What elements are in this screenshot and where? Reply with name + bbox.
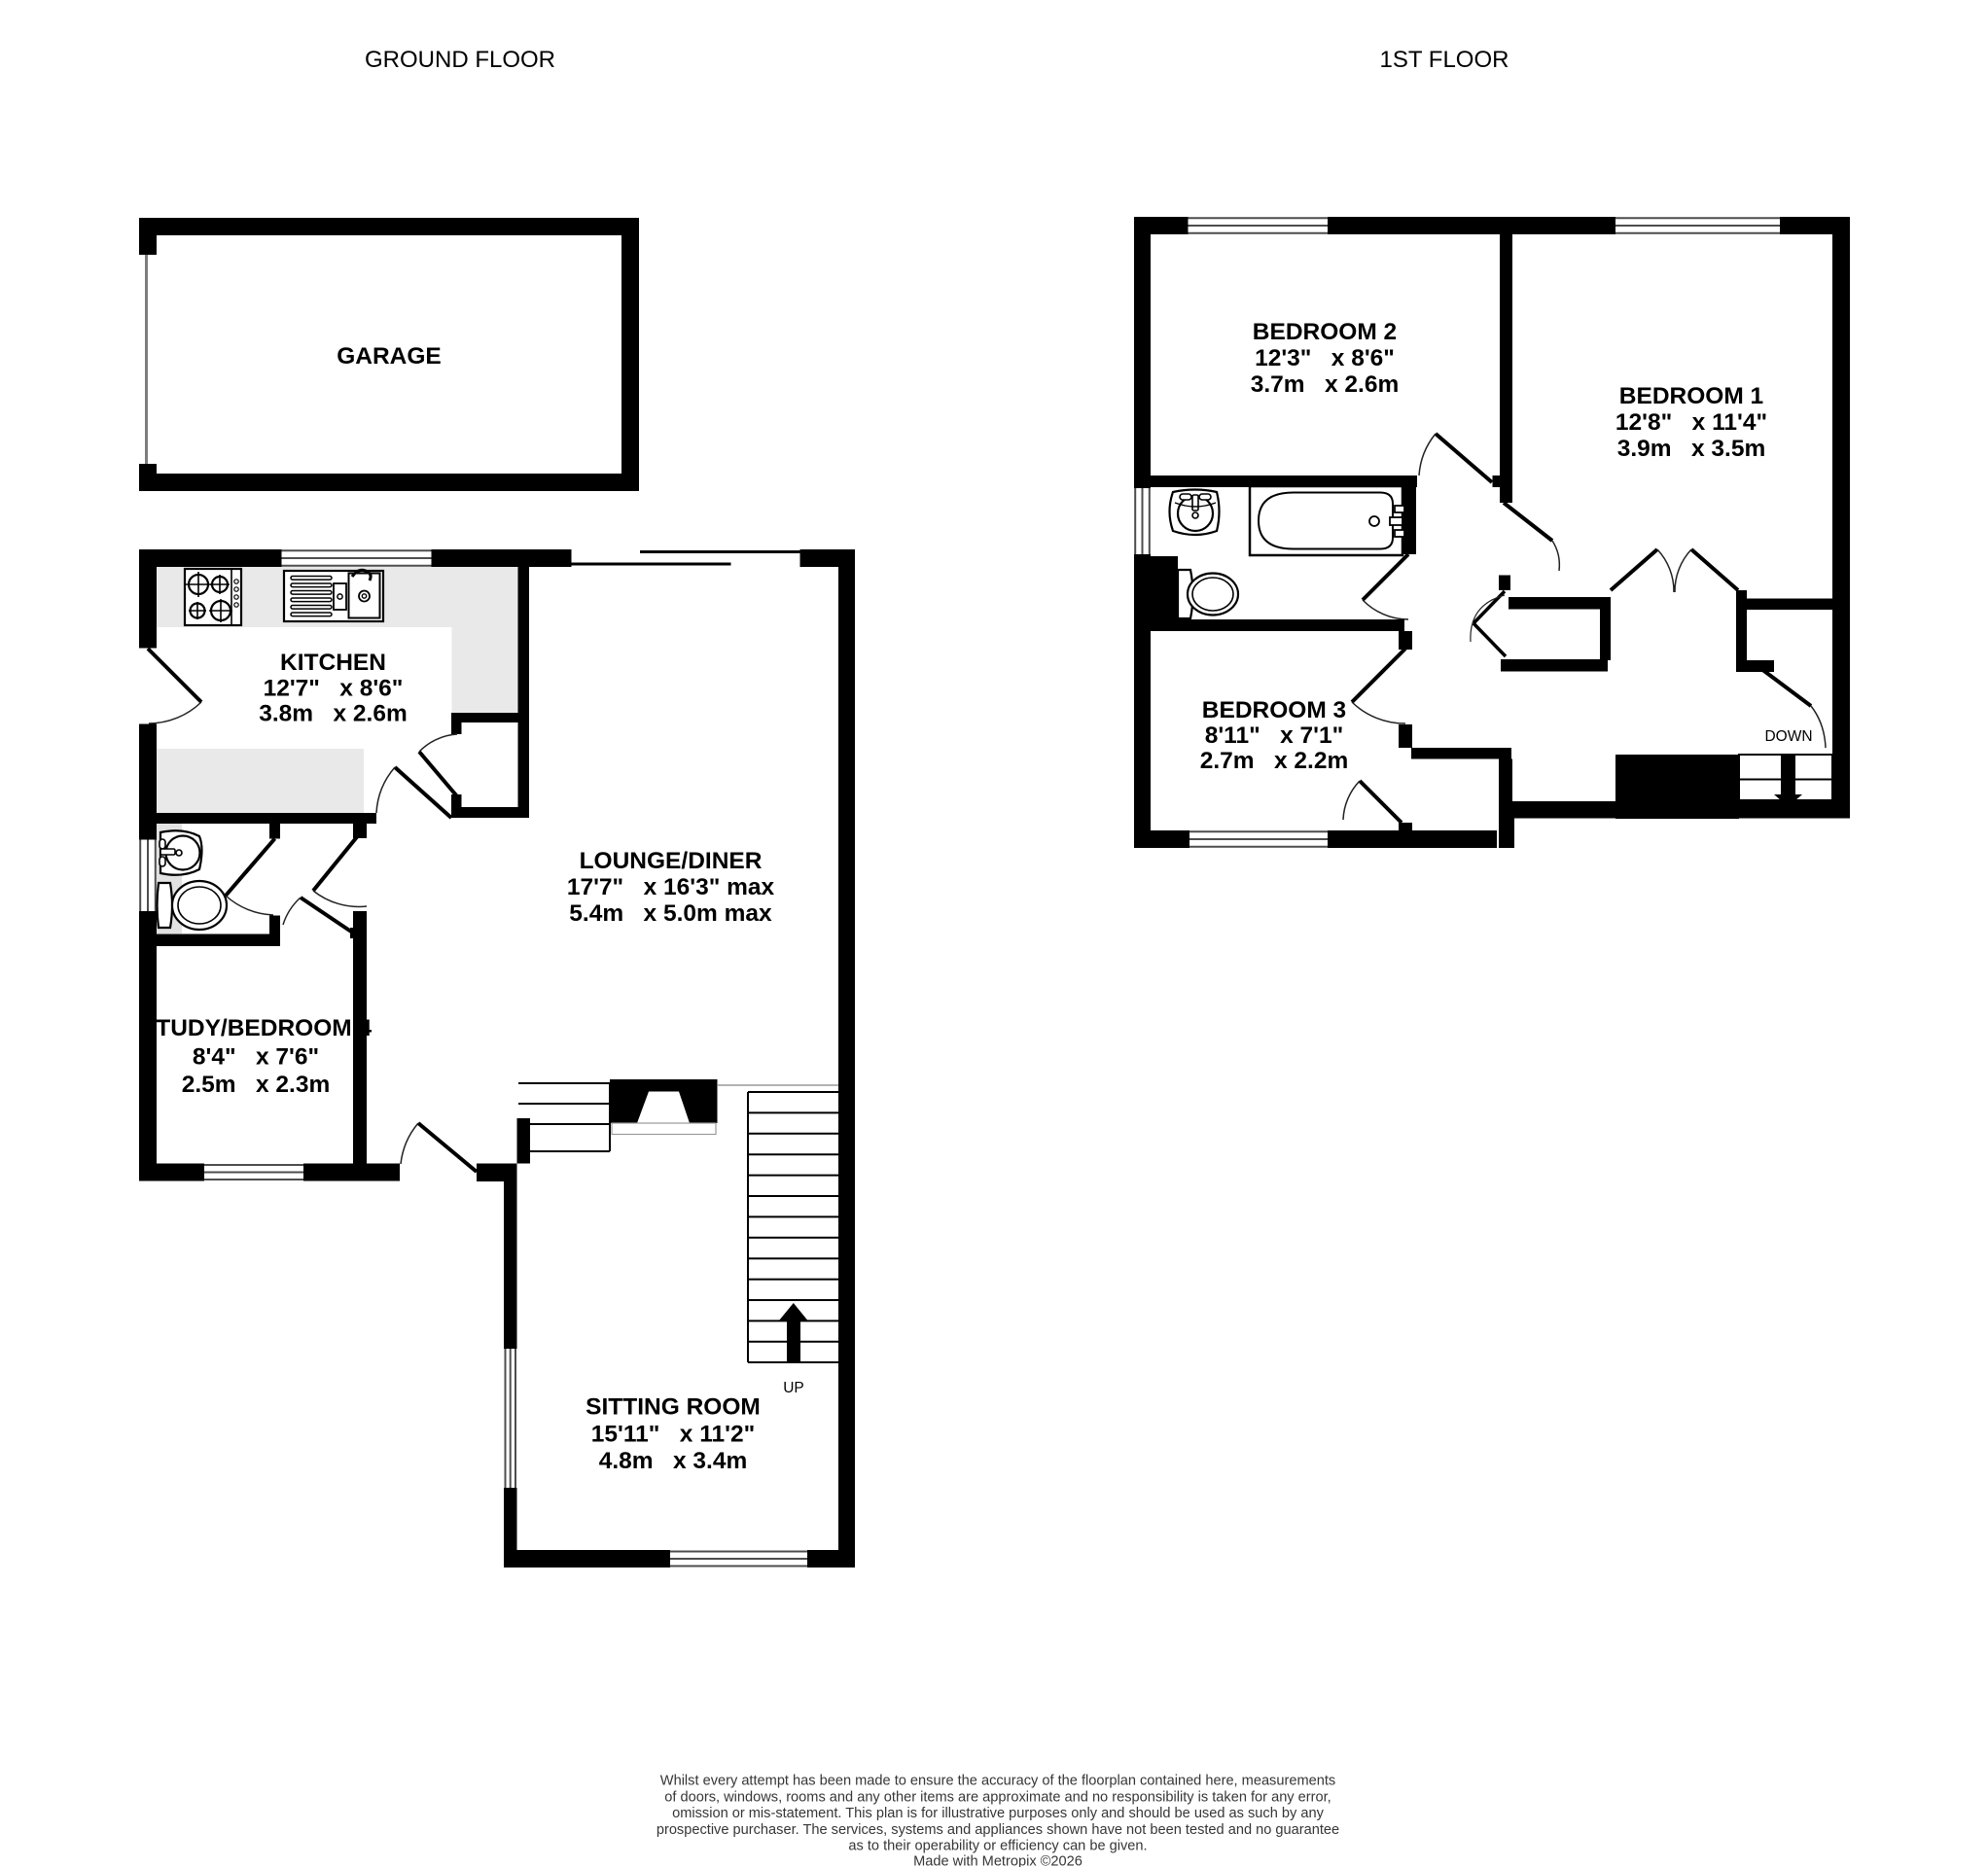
svg-text:5.4m x 5.0m max: 5.4m x 5.0m max: [569, 900, 772, 927]
svg-text:2.5m x 2.3m: 2.5m x 2.3m: [182, 1072, 331, 1098]
svg-text:Whilst every attempt has been: Whilst every attempt has been made to en…: [660, 1774, 1335, 1789]
svg-text:BEDROOM 2: BEDROOM 2: [1253, 319, 1397, 345]
svg-text:1ST FLOOR: 1ST FLOOR: [1380, 47, 1509, 73]
svg-text:4.8m x 3.4m: 4.8m x 3.4m: [599, 1448, 748, 1474]
svg-text:12'8" x 11'4": 12'8" x 11'4": [1615, 409, 1767, 436]
svg-text:8'11" x 7'1": 8'11" x 7'1": [1205, 722, 1344, 749]
svg-text:3.7m x 2.6m: 3.7m x 2.6m: [1251, 371, 1400, 398]
svg-text:3.9m x 3.5m: 3.9m x 3.5m: [1617, 436, 1766, 462]
svg-text:17'7" x 16'3" max: 17'7" x 16'3" max: [567, 874, 775, 900]
svg-text:KITCHEN: KITCHEN: [280, 650, 386, 676]
svg-text:3.8m x 2.6m: 3.8m x 2.6m: [259, 701, 408, 727]
svg-text:BEDROOM 1: BEDROOM 1: [1619, 383, 1763, 409]
svg-text:BEDROOM 3: BEDROOM 3: [1202, 697, 1346, 723]
svg-text:2.7m x 2.2m: 2.7m x 2.2m: [1200, 748, 1349, 774]
svg-text:UP: UP: [783, 1380, 804, 1396]
svg-text:GROUND FLOOR: GROUND FLOOR: [365, 47, 555, 73]
svg-text:prospective purchaser. The ser: prospective purchaser. The services, sys…: [657, 1822, 1339, 1838]
svg-text:as to their operability or eff: as to their operability or efficiency ca…: [848, 1839, 1147, 1854]
svg-text:SITTING ROOM: SITTING ROOM: [586, 1394, 761, 1421]
svg-text:GARAGE: GARAGE: [337, 343, 442, 370]
svg-text:of doors, windows, rooms and a: of doors, windows, rooms and any other i…: [664, 1789, 1331, 1805]
svg-text:12'3" x 8'6": 12'3" x 8'6": [1255, 345, 1395, 371]
svg-text:LOUNGE/DINER: LOUNGE/DINER: [580, 848, 763, 874]
svg-text:8'4" x 7'6": 8'4" x 7'6": [193, 1044, 319, 1071]
svg-text:omission or mis-statement. Thi: omission or mis-statement. This plan is …: [672, 1806, 1324, 1821]
svg-text:15'11" x 11'2": 15'11" x 11'2": [591, 1422, 755, 1448]
svg-text:Made with Metropix ©2026: Made with Metropix ©2026: [913, 1854, 1083, 1867]
svg-text:DOWN: DOWN: [1764, 728, 1812, 745]
svg-text:STUDY/BEDROOM 4: STUDY/BEDROOM 4: [140, 1015, 373, 1041]
svg-text:12'7" x 8'6": 12'7" x 8'6": [264, 676, 404, 702]
